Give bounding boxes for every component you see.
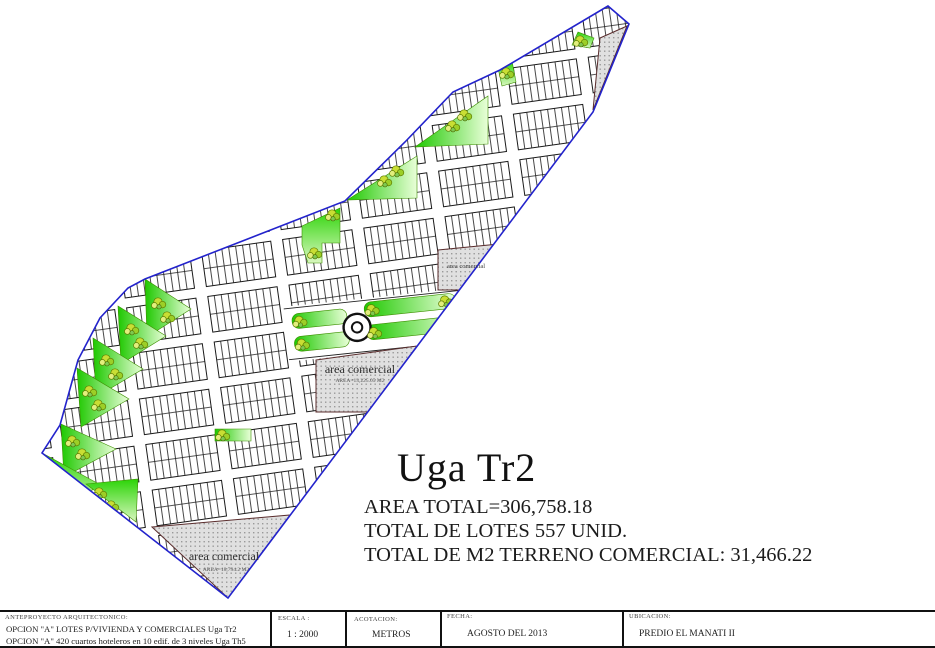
stat-total-lotes: TOTAL DE LOTES 557 UNID. [364, 520, 812, 544]
commercial-bottom-area: AREA=18,794.2 M2 [203, 567, 250, 573]
title-block: ANTEPROYECTO ARQUITECTONICO: OPCION "A" … [0, 610, 935, 648]
titleblock-project: ANTEPROYECTO ARQUITECTONICO: OPCION "A" … [0, 612, 270, 646]
escala-caption: ESCALA : [278, 615, 310, 622]
acotacion-caption: ACOTACION: [354, 616, 398, 623]
titleblock-ubicacion: UBICACION: PREDIO EL MANATI II [622, 612, 935, 646]
drawing-sheet: area comercial area comercial AREA=13,22… [0, 0, 935, 648]
commercial-mid-label: area comercial [325, 362, 396, 376]
tree-icon [63, 486, 77, 497]
commercial-mid-area: AREA=13,225.05 M2 [335, 378, 384, 384]
stat-total-comercial: TOTAL DE M2 TERRENO COMERCIAL: 31,466.22 [364, 544, 812, 568]
commercial-bottom-label: area comercial [189, 549, 260, 563]
titleblock-escala: ESCALA : 1 : 2000 [270, 612, 345, 646]
ubicacion-caption: UBICACION: [629, 613, 671, 620]
project-line-1: OPCION "A" LOTES P/VIVIENDA Y COMERCIALE… [6, 624, 237, 634]
green-area [86, 479, 138, 522]
fecha-value: AGOSTO DEL 2013 [467, 629, 547, 639]
tree-icon [51, 473, 65, 484]
roundabout-inner-ring [351, 322, 362, 333]
plan-stats: AREA TOTAL=306,758.18 TOTAL DE LOTES 557… [364, 496, 812, 567]
ubicacion-value: PREDIO EL MANATI II [639, 629, 735, 639]
project-line-2: OPCION "A" 420 cuartos hoteleros en 10 e… [6, 636, 246, 646]
titleblock-acotacion: ACOTACION: METROS [345, 612, 440, 646]
fecha-caption: FECHA: [447, 613, 473, 620]
stat-area-total: AREA TOTAL=306,758.18 [364, 496, 812, 520]
acotacion-value: METROS [372, 630, 411, 640]
commercial-upper-label: area comercial [447, 263, 485, 270]
titleblock-fecha: FECHA: AGOSTO DEL 2013 [440, 612, 622, 646]
project-caption: ANTEPROYECTO ARQUITECTONICO: [5, 614, 128, 621]
escala-value: 1 : 2000 [287, 630, 318, 640]
plan-title: Uga Tr2 [397, 444, 536, 491]
